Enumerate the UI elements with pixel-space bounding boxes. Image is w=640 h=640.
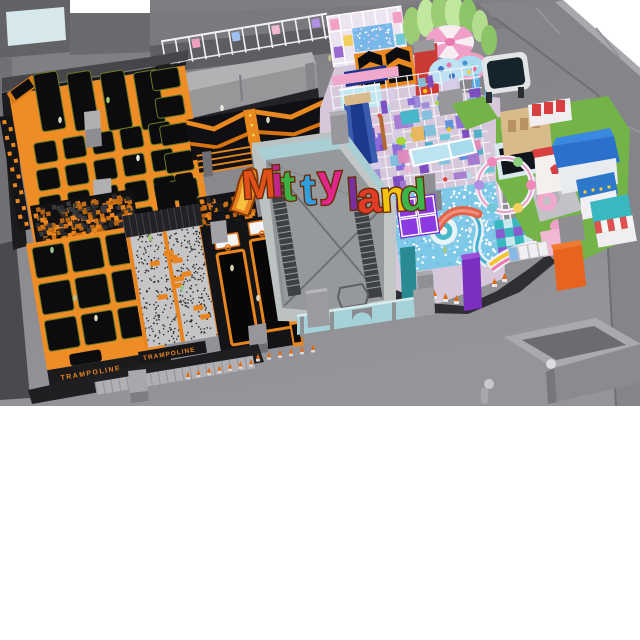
svg-text:d: d [398, 170, 428, 221]
svg-text:y: y [316, 155, 344, 206]
